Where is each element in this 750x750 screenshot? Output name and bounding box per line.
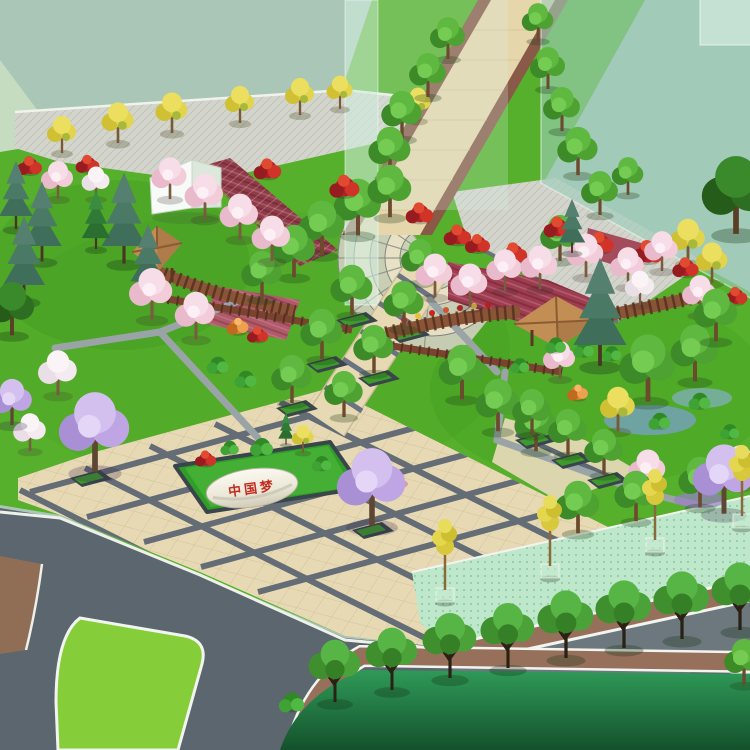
lawn-median [56, 618, 203, 750]
glass-subpane [700, 0, 750, 45]
street-lawn-dark [280, 670, 750, 750]
park-rendering: 中国梦 [0, 0, 750, 750]
rendering-canvas: 中国梦 [0, 0, 750, 750]
